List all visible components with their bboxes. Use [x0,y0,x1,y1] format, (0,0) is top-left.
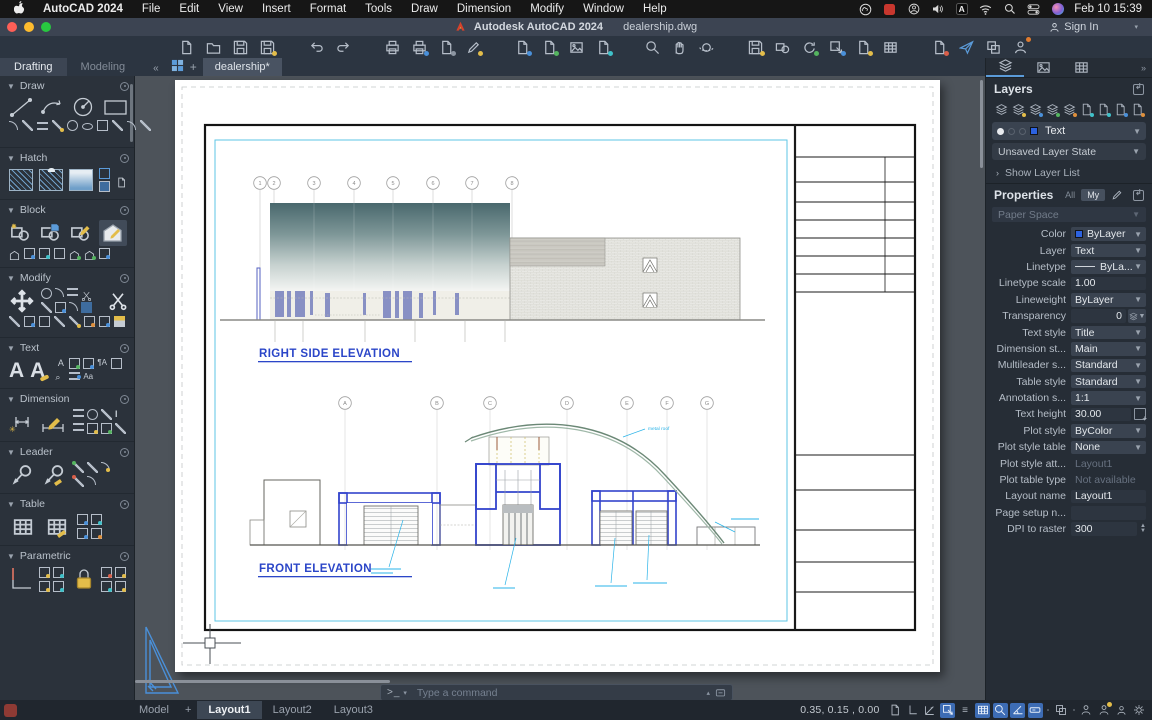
section-dimension: ▼Dimension ✳ I [0,389,134,442]
transparency-picker-button[interactable]: ▼ [1128,309,1146,323]
layer-freeze-status-icon[interactable] [1008,128,1015,135]
aligned-constraint-icon[interactable] [115,567,126,578]
plot-style-dropdown[interactable]: ByColor▼ [1071,424,1146,438]
layer-properties-icon[interactable] [1011,102,1026,117]
polygon-tool-icon[interactable] [97,120,108,131]
layer-state-chevron-icon[interactable]: ▼ [1132,147,1140,156]
object-snap-toggle-icon[interactable] [940,703,955,718]
transparency-input[interactable]: 0 [1071,309,1126,323]
canvas-horizontal-scrollbar[interactable] [135,680,390,683]
block-hierarchy-icon[interactable] [39,248,50,259]
section-gear-icon[interactable] [120,344,129,353]
section-gear-icon[interactable] [120,206,129,215]
trim-tool-icon[interactable] [81,288,92,299]
coincident-constraint-icon[interactable] [39,567,50,578]
dpi-stepper[interactable]: ▲▼ [1140,524,1146,534]
lengthen-tool-icon[interactable] [69,316,80,327]
menu-modify[interactable]: Modify [530,3,564,15]
angle-snap-toggle-icon[interactable] [1010,703,1025,718]
layer-freeze-icon[interactable] [1045,102,1060,117]
canvas-vertical-scrollbar[interactable] [980,80,983,168]
property-row-multileader-style: Multileader s... Standard▼ [986,357,1152,373]
svg-text:E: E [625,401,629,407]
zoom-window-icon[interactable] [644,39,661,56]
macos-menu-bar: AutoCAD 2024 File Edit View Insert Forma… [0,0,1152,18]
table-tool-icon[interactable] [9,515,37,539]
new-drawing-tab-icon[interactable]: + [190,60,197,74]
annotation-leaders [389,429,735,585]
new-layer-icon[interactable] [994,102,1009,117]
scale-tool-icon[interactable] [24,316,35,327]
svg-text:7: 7 [470,181,473,187]
properties-rows: Color ByLayer▼ Layer Text▼ Linetype ByLa… [986,226,1152,537]
property-row-plot-style-attached: Plot style att... Layout1 [986,455,1152,471]
layer-lock-icon[interactable] [1113,102,1128,117]
table-panel-tab[interactable] [1062,60,1100,75]
menu-clock[interactable]: Feb 10 15:39 [1074,3,1142,15]
arc-tool-icon[interactable] [40,96,65,118]
redo-icon[interactable] [335,39,352,56]
annotation-visibility-icon[interactable] [1096,703,1111,718]
text-frame-icon[interactable] [111,358,122,369]
layers-title: Layers [994,82,1033,96]
image-reference-icon[interactable] [568,39,585,56]
radius-dim-icon[interactable] [87,409,98,420]
pdf-import-icon[interactable] [595,39,612,56]
copy-tool-icon[interactable] [41,288,52,299]
ellipse-tool-icon[interactable] [82,123,93,130]
creative-cloud-icon[interactable] [858,2,873,16]
properties-dock-icon[interactable] [1133,190,1144,201]
settings-gear-icon[interactable] [1131,703,1146,718]
mtext-tool-icon[interactable]: A [9,361,24,381]
layer-state-selector[interactable]: Unsaved Layer State ▼ [992,143,1146,160]
layers-panel-tab[interactable] [986,58,1024,77]
rectangle-tool-icon[interactable] [102,96,129,118]
write-block-tool-icon[interactable] [39,222,63,244]
hatch-boundary-tool-icon[interactable] [99,168,110,179]
sign-in-chevron-icon[interactable]: ▾ [1134,23,1138,31]
insert-block-tool-icon[interactable] [9,222,33,244]
layer-on-icon[interactable] [997,128,1004,135]
text-height-input[interactable]: 30.00 [1071,408,1131,422]
space-chevron-icon: ▼ [1132,210,1140,219]
break-tool-icon[interactable] [39,316,50,327]
command-input[interactable]: Type a command [417,687,498,699]
save-icon[interactable] [232,39,249,56]
radial-constraint-icon[interactable] [101,581,112,592]
single-text-tool-icon[interactable]: A [30,361,45,381]
roof-annotation: metal roof [648,426,670,432]
section-text: ▼Text A A A ¶A ⌕ Aa [0,338,134,389]
control-center-icon[interactable] [1026,2,1041,16]
layer-isolate-icon[interactable] [1079,102,1094,117]
move-tool-icon[interactable] [9,288,35,314]
gradient-tool-icon[interactable] [69,169,93,191]
account-icon[interactable] [906,2,921,16]
collapse-triangle-icon[interactable]: ▼ [7,500,15,509]
plot-table-type-value: Not available [1071,474,1146,486]
dynamic-input-toggle-icon[interactable] [1028,703,1043,718]
page-setup-input[interactable] [1071,506,1146,520]
svg-text:G: G [705,401,709,407]
circle-tool-icon[interactable] [71,96,96,118]
property-row-linetype-scale: Linetype scale 1.00 [986,275,1152,291]
rotate-tool-icon[interactable] [55,288,64,297]
lineweight-dropdown[interactable]: ByLayer▼ [1071,293,1146,307]
svg-text:8: 8 [510,181,513,187]
linetype-dropdown[interactable]: ByLa...▼ [1071,260,1146,274]
front-elevation-title: FRONT ELEVATION [259,563,372,575]
annotation-scale-dropdown[interactable]: 1:1▼ [1071,391,1146,405]
layers-dock-icon[interactable] [1133,84,1144,95]
layout-paper-sheet[interactable]: 1 2 3 4 5 6 7 8 [175,80,940,672]
table-link-icon[interactable] [91,514,102,525]
panel-overflow-icon[interactable]: » [1141,63,1146,73]
menu-format[interactable]: Format [310,3,346,15]
layer-lock-status-icon[interactable] [1019,128,1026,135]
start-tab-icon[interactable] [171,59,184,75]
annotate-icon[interactable] [747,39,764,56]
leader-style-icon[interactable] [87,476,96,485]
grid-bubbles-front [339,397,714,410]
collapse-triangle-icon[interactable]: ▼ [7,395,15,404]
angular-constraint-icon[interactable] [115,581,126,592]
layout1-tab[interactable]: Layout1 [197,701,261,719]
copy-properties-icon[interactable] [855,39,872,56]
color-dropdown[interactable]: ByLayer▼ [1071,227,1146,241]
layer-unlock-icon[interactable] [1130,102,1145,117]
coordinates-readout: 0.35, 0.15 , 0.00 [800,704,879,716]
collapse-triangle-icon[interactable]: ▼ [7,154,15,163]
snap-cursor-toggle-icon[interactable] [993,703,1008,718]
edit-attribute-tool-icon[interactable] [99,220,127,246]
save-as-icon[interactable] [259,39,276,56]
block-frame-icon[interactable] [54,248,65,259]
collapse-palette-icon[interactable]: « [153,63,159,74]
section-parametric: ▼Parametric [0,546,134,602]
collect-leader-icon[interactable] [101,462,110,471]
table-data-icon[interactable] [91,528,102,539]
menu-dimension[interactable]: Dimension [457,3,511,15]
jogged-dim-icon[interactable] [115,423,126,434]
spline-tool-icon[interactable] [22,120,33,131]
donut-tool-icon[interactable] [67,120,78,131]
tab-modeling[interactable]: Modeling [67,58,140,76]
fillet-tool-icon[interactable] [69,302,78,311]
section-block: ▼Block [0,200,134,268]
blocks-palette-icon[interactable] [99,248,110,259]
attribute-manager-icon[interactable] [84,248,95,259]
trim-large-icon[interactable] [107,288,129,312]
text-style-dropdown[interactable]: Title▼ [1071,326,1146,340]
hatch-settings-icon[interactable] [116,175,127,186]
menu-insert[interactable]: Insert [262,3,291,15]
compare-icon[interactable] [931,39,948,56]
erase-tool-icon[interactable] [114,316,125,327]
text-case-icon[interactable]: Aa [83,372,94,383]
section-gear-icon[interactable] [120,448,129,457]
table-edit-tool-icon[interactable] [43,515,71,539]
multileader-style-dropdown[interactable]: Standard▼ [1071,359,1146,373]
tool-palette: ▼Draw ▼Hatch [0,76,135,700]
text-align-icon[interactable] [83,358,94,369]
dimension-edit-tool-icon[interactable] [41,412,67,432]
drawing-canvas[interactable]: 1 2 3 4 5 6 7 8 [135,76,985,700]
lineweight-toggle-icon[interactable]: ≡ [958,703,973,718]
collapse-triangle-icon[interactable]: ▼ [7,448,15,457]
polyline-tool-icon[interactable] [127,121,136,130]
grid-toggle-icon[interactable] [975,703,990,718]
collapse-triangle-icon[interactable]: ▼ [7,206,15,215]
section-block-label: Block [20,204,46,216]
3d-tool-icon[interactable] [81,302,92,313]
edit-drawing-icon[interactable] [465,39,482,56]
text-scale-icon[interactable]: ¶A [97,358,108,369]
command-expand-icon[interactable]: ▴ [706,689,710,697]
justify-icon[interactable] [69,372,80,380]
command-history-chevron-icon[interactable]: ▾ [403,689,407,697]
section-gear-icon[interactable] [120,82,129,91]
multiline-tool-icon[interactable] [37,122,48,130]
window-title: Autodesk AutoCAD 2024 dealership.dwg [0,21,1152,33]
linear-dimension-tool-icon[interactable]: ✳ [9,412,35,432]
collapse-triangle-icon[interactable]: ▼ [7,552,15,561]
property-row-plot-style-table: Plot style table None▼ [986,439,1152,455]
tab-drafting[interactable]: Drafting [0,58,67,76]
paper-space-toggle-icon[interactable] [888,703,903,718]
extend-tool-icon[interactable] [54,316,65,327]
collapse-triangle-icon[interactable]: ▼ [7,82,15,91]
selection-cycling-toggle-icon[interactable] [1053,703,1068,718]
pan-icon[interactable] [671,39,688,56]
corner-app-icon [4,704,17,717]
fillet-arc-tool-icon[interactable] [9,121,18,130]
add-leader-icon[interactable] [73,462,84,473]
menu-app-name[interactable]: AutoCAD 2024 [43,3,123,15]
window-title-doc: dealership.dwg [623,21,697,33]
block-tree-icon[interactable] [24,248,35,259]
quick-access-toolbar [0,36,1152,58]
spell-check-icon[interactable] [69,358,80,369]
volume-icon[interactable] [930,2,945,16]
join-tool-icon[interactable] [99,316,110,327]
polar-tracking-toggle-icon[interactable] [923,703,938,718]
section-table-label: Table [20,498,45,510]
baseline-dim-icon[interactable] [73,423,84,431]
layer-dropdown-chevron-icon[interactable]: ▼ [1133,127,1141,136]
dpi-input[interactable]: 300 [1071,522,1137,536]
layer-dropdown[interactable]: Text▼ [1071,244,1146,258]
align-leader-icon[interactable] [87,462,98,473]
svg-text:A: A [343,401,347,407]
text-style-icon[interactable]: A [55,358,66,369]
explode-tool-icon[interactable] [84,316,95,327]
text-height-pick-icon[interactable] [1134,408,1146,420]
sheet-set-panel-tab[interactable] [1024,60,1062,75]
layer-walk-icon[interactable] [1028,102,1043,117]
layer-unisolate-icon[interactable] [1096,102,1111,117]
center-mark-icon[interactable] [87,423,98,434]
menu-help[interactable]: Help [643,3,667,15]
menu-view[interactable]: View [218,3,243,15]
siri-icon[interactable] [1050,2,1065,16]
space-selector[interactable]: Paper Space ▼ [992,207,1146,222]
lock-constraint-icon[interactable] [73,567,95,591]
property-row-layer: Layer Text▼ [986,242,1152,258]
attach-icon[interactable] [541,39,558,56]
mirror-tool-icon[interactable] [41,302,52,313]
layers-panel-header: Layers [986,78,1152,98]
ordinate-dim-icon[interactable]: I [115,409,126,420]
wifi-icon[interactable] [978,2,993,16]
share-icon[interactable] [958,39,975,56]
layer-off-icon[interactable] [1062,102,1077,117]
section-gear-icon[interactable] [120,500,129,509]
offset-tool-icon[interactable] [67,288,78,296]
annotation-scale-icon[interactable] [1114,703,1129,718]
hatch-pattern-tool-icon[interactable] [39,169,63,191]
collapse-triangle-icon[interactable]: ▼ [7,274,15,283]
ray-tool-icon[interactable] [52,120,63,131]
sheet-set-icon[interactable] [882,39,899,56]
property-row-page-setup: Page setup n... [986,505,1152,521]
section-gear-icon[interactable] [120,395,129,404]
feedback-icon[interactable] [1012,39,1029,56]
table-cell-icon[interactable] [77,528,88,539]
point-tool-icon[interactable] [140,120,151,131]
match-properties-icon[interactable] [828,39,845,56]
table-style-dropdown[interactable]: Standard▼ [1071,375,1146,389]
paper-space-ucs-icon [140,624,182,698]
vertical-constraint-icon[interactable] [39,581,50,592]
tolerance-icon[interactable] [101,423,112,434]
edit-block-tool-icon[interactable] [69,222,93,244]
properties-edit-icon[interactable] [1111,189,1123,201]
table-export-icon[interactable] [77,514,88,525]
section-gear-icon[interactable] [120,552,129,561]
insert-block-icon[interactable] [774,39,791,56]
command-line[interactable]: >_ ▾ Type a command ▴ [380,684,733,700]
model-tab[interactable]: Model [129,701,179,719]
collapse-triangle-icon[interactable]: ▼ [7,344,15,353]
property-row-table-style: Table style Standard▼ [986,374,1152,390]
property-row-text-style: Text style Title▼ [986,324,1152,340]
publish-icon[interactable] [438,39,455,56]
plot-preview-icon[interactable] [411,39,428,56]
spotlight-icon[interactable] [1002,2,1017,16]
linetype-scale-input[interactable]: 1.00 [1071,277,1146,291]
plot-style-attached-value: Layout1 [1071,458,1146,470]
layout2-tab[interactable]: Layout2 [262,701,323,719]
menu-window[interactable]: Window [583,3,624,15]
import-icon[interactable] [514,39,531,56]
hatch-edit-tool-icon[interactable] [99,181,110,192]
right-side-elevation: 1 2 3 4 5 6 7 8 [220,177,765,363]
annotation-monitor-icon[interactable] [1079,703,1094,718]
menu-draw[interactable]: Draw [411,3,438,15]
horizontal-constraint-icon[interactable] [53,581,64,592]
crosshair-cursor [183,624,243,664]
right-side-panel: » Layers Text ▼ Unsaved Layer State ▼ › … [985,58,1152,700]
property-row-linetype: Linetype ByLa...▼ [986,259,1152,275]
property-row-plot-table-type: Plot table type Not available [986,472,1152,488]
linetype-sample [1075,266,1095,267]
svg-text:2: 2 [272,181,275,187]
new-file-icon[interactable] [178,39,195,56]
layer-color-swatch[interactable] [1030,127,1038,135]
line-tool-icon[interactable] [9,96,34,118]
plot-icon[interactable] [384,39,401,56]
new-layout-icon[interactable]: + [179,704,197,716]
svg-text:B: B [435,401,439,407]
properties-title: Properties [994,188,1053,202]
find-text-icon[interactable]: ⌕ [55,372,66,383]
properties-filter-my[interactable]: My [1081,189,1105,201]
right-elevation-title: RIGHT SIDE ELEVATION [259,348,400,360]
update-fields-icon[interactable] [801,39,818,56]
section-parametric-label: Parametric [20,550,71,562]
document-tab[interactable]: dealership* [203,58,282,76]
layer-toolbar [986,98,1152,120]
menu-file[interactable]: File [142,3,161,15]
properties-filter-all[interactable]: All [1059,189,1081,201]
section-gear-icon[interactable] [120,274,129,283]
array-tool-icon[interactable] [55,302,66,313]
angular-dim-icon[interactable] [101,409,112,420]
ortho-toggle-icon[interactable] [905,703,920,718]
layout-name-input[interactable]: Layout1 [1071,490,1146,504]
app-window-icon[interactable] [985,39,1002,56]
undo-icon[interactable] [308,39,325,56]
svg-text:1: 1 [258,181,261,187]
section-text-label: Text [20,342,39,354]
layout3-tab[interactable]: Layout3 [323,701,384,719]
aligned-dim-icon[interactable] [73,409,84,417]
menu-edit[interactable]: Edit [179,3,199,15]
plot-style-table-dropdown[interactable]: None▼ [1071,441,1146,455]
show-layer-list-toggle[interactable]: › Show Layer List [986,163,1152,184]
geometric-constraint-icon[interactable] [9,566,33,592]
attribute-sync-icon[interactable] [69,248,80,259]
hatch-tool-icon[interactable] [9,169,33,191]
menu-tools[interactable]: Tools [365,3,392,15]
tag-tool-icon[interactable] [9,248,20,259]
open-file-icon[interactable] [205,39,222,56]
input-source-icon[interactable]: A [954,2,969,16]
status-bar: Model + Layout1 Layout2 Layout3 0.35, 0.… [0,700,1152,720]
orbit-icon[interactable] [698,39,715,56]
dimensional-constraint-icon[interactable] [101,567,112,578]
section-draw-label: Draw [20,80,45,92]
space-label: Paper Space [998,209,1059,221]
section-gear-icon[interactable] [120,154,129,163]
sign-in-button[interactable]: Sign In ▾ [1049,21,1138,33]
screen-record-icon[interactable] [882,2,897,16]
dimension-style-dropdown[interactable]: Main▼ [1071,342,1146,356]
command-tools-icon[interactable] [715,687,726,698]
apple-menu-icon[interactable] [14,1,25,17]
multileader-tool-icon[interactable] [9,463,35,487]
xline-tool-icon[interactable] [112,120,123,131]
parallel-constraint-icon[interactable] [53,567,64,578]
current-layer-selector[interactable]: Text ▼ [992,122,1146,140]
stretch-tool-icon[interactable] [9,316,20,327]
workspace-tabs-row: Drafting Modeling « + dealership* [0,58,985,76]
leader-edit-tool-icon[interactable] [41,463,67,487]
remove-leader-icon[interactable] [73,476,84,487]
property-row-transparency: Transparency 0 ▼ [986,308,1152,324]
